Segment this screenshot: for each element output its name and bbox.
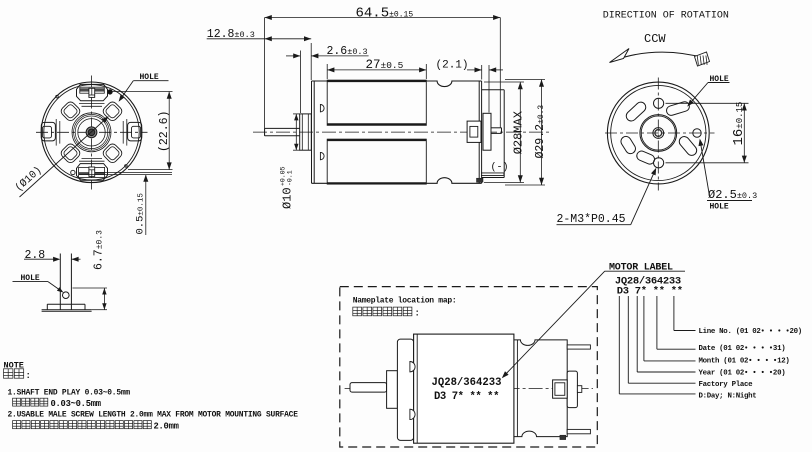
svg-text:Ø10: Ø10 <box>281 187 295 209</box>
svg-text:2.8: 2.8 <box>25 249 46 262</box>
svg-text:D3 7* ** **: D3 7* ** ** <box>617 286 683 298</box>
svg-text:Month (01 02• • • •12): Month (01 02• • • •12) <box>699 358 790 366</box>
svg-text:0.03~0.5mm: 0.03~0.5mm <box>51 399 101 409</box>
svg-text:Ø28MAX: Ø28MAX <box>512 111 526 154</box>
svg-text:(-): (-) <box>491 162 509 174</box>
svg-text:MOTOR LABEL: MOTOR LABEL <box>609 263 673 274</box>
svg-text:2.6±0.3: 2.6±0.3 <box>327 45 368 58</box>
svg-text:Factory Place: Factory Place <box>699 381 754 389</box>
svg-text:1.SHAFT END PLAY 0.03~0.5mm: 1.SHAFT END PLAY 0.03~0.5mm <box>8 389 131 398</box>
svg-text:Year (01 02• • • •20): Year (01 02• • • •20) <box>699 370 786 378</box>
svg-text:D3 7* ** **: D3 7* ** ** <box>434 391 499 403</box>
svg-text:CCW: CCW <box>644 32 666 46</box>
svg-text:JQ28/364233: JQ28/364233 <box>432 377 502 389</box>
svg-text:27±0.5: 27±0.5 <box>366 58 404 72</box>
svg-text:Date (01 02• • • •31): Date (01 02• • • •31) <box>699 345 786 353</box>
svg-text:(2.1): (2.1) <box>436 60 469 72</box>
svg-text:2-M3*P0.45: 2-M3*P0.45 <box>557 213 626 226</box>
svg-text:(22.6): (22.6) <box>158 111 171 152</box>
svg-text::: : <box>26 371 31 381</box>
svg-text:+0.05: +0.05 <box>280 166 287 186</box>
svg-text:Ø2.5±0.3: Ø2.5±0.3 <box>708 188 757 202</box>
svg-text:12.8±0.3: 12.8±0.3 <box>207 28 255 41</box>
svg-text::: : <box>415 309 420 319</box>
svg-text:Nameplate location map:: Nameplate location map: <box>353 297 457 306</box>
svg-text:2.0mm: 2.0mm <box>154 421 179 431</box>
svg-text:HOLE: HOLE <box>710 203 729 212</box>
svg-text:-0.1: -0.1 <box>287 170 294 186</box>
svg-text:D:Day; N:Night: D:Day; N:Night <box>699 393 757 401</box>
svg-text:Line No. (01 02• • • •20): Line No. (01 02• • • •20) <box>699 328 802 336</box>
svg-text:DIRECTION OF ROTATION: DIRECTION OF ROTATION <box>603 11 729 22</box>
svg-text:2.USABLE MALE SCREW LENGTH 2.0: 2.USABLE MALE SCREW LENGTH 2.0mm MAX FRO… <box>8 411 299 420</box>
